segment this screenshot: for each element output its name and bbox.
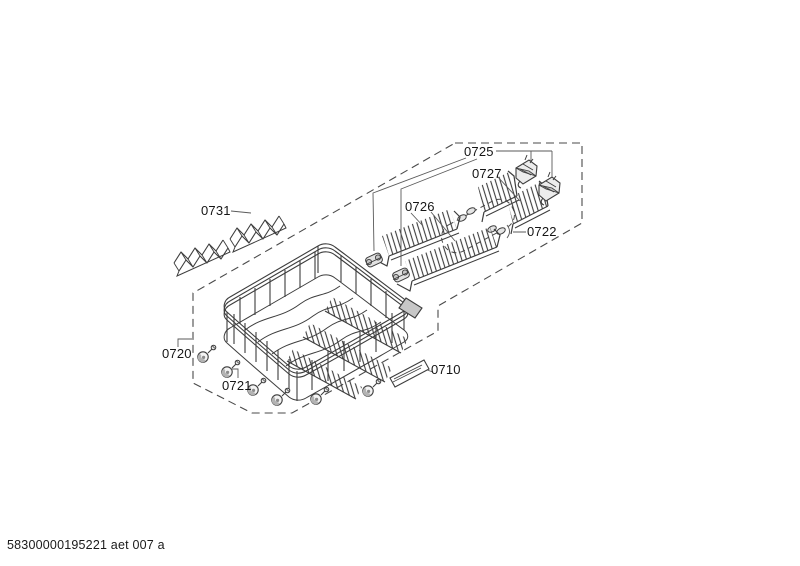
exploded-diagram-drawing — [0, 0, 800, 566]
part-label-0710: 0710 — [431, 363, 461, 376]
basket-rim — [224, 244, 408, 377]
part-0710-strip — [390, 360, 429, 387]
part-label-0731: 0731 — [201, 204, 231, 217]
part-label-0721: 0721 — [222, 379, 252, 392]
part-0731-cup-shelf — [174, 216, 286, 276]
part-label-0727: 0727 — [472, 167, 502, 180]
basket-tine-field — [287, 297, 408, 399]
basket-corner-bracket — [399, 298, 422, 318]
part-label-0725: 0725 — [464, 145, 494, 158]
part-label-0726: 0726 — [405, 200, 435, 213]
parts-diagram-page: 0731 0726 0725 0727 0722 0720 0721 0710 … — [0, 0, 800, 566]
part-label-0720: 0720 — [162, 347, 192, 360]
part-0726-tine-rows — [374, 209, 500, 291]
document-code: 58300000195221 aet 007 a — [7, 538, 165, 552]
part-label-0722: 0722 — [527, 225, 557, 238]
